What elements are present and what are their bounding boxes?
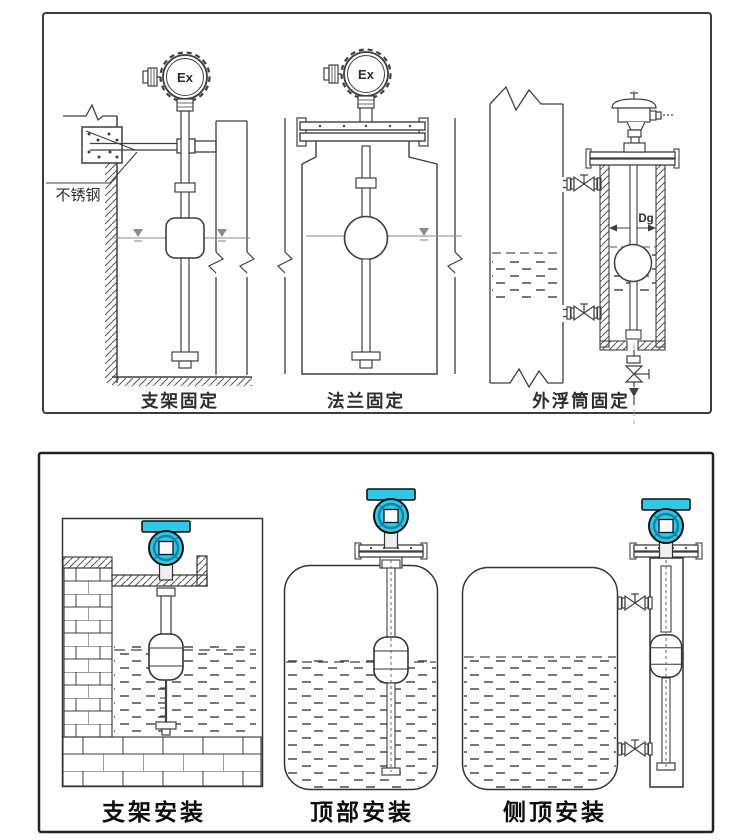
caption-external-chamber-fixing: 外浮筒固定 [532,391,630,411]
bracket-install-diagram [63,519,263,787]
dg-label: Dg [638,213,653,225]
diagram-canvas: Ex [0,0,750,840]
caption-flange-fixing: 法兰固定 [327,391,405,411]
chamber-wall [656,165,665,347]
chamber-wall [600,165,609,347]
ground-hatch [112,378,252,386]
liquid-fill [492,257,561,303]
caption-top-install: 顶部安装 [310,799,414,825]
stainless-steel-label: 不锈钢 [55,187,100,204]
bracket-upturn [197,556,207,586]
caption-side-top-install: 侧顶安装 [503,799,607,825]
float-ball [615,245,652,282]
caption-bracket-fixing: 支架固定 [140,391,219,411]
float-ball [166,218,204,258]
sensor-rod [662,678,670,763]
liquid-fill [464,655,616,788]
brick-floor [63,737,261,786]
wall-cap [63,557,112,568]
liquid-fill [286,660,436,788]
brick-wall [64,568,112,737]
caption-bracket-install: 支架安装 [101,799,206,825]
sensor-rod [387,683,395,768]
diagram-sheet: Ex [0,0,750,840]
liquid-fill [114,645,256,735]
float-ball [345,217,388,260]
guide-tube [161,596,171,636]
